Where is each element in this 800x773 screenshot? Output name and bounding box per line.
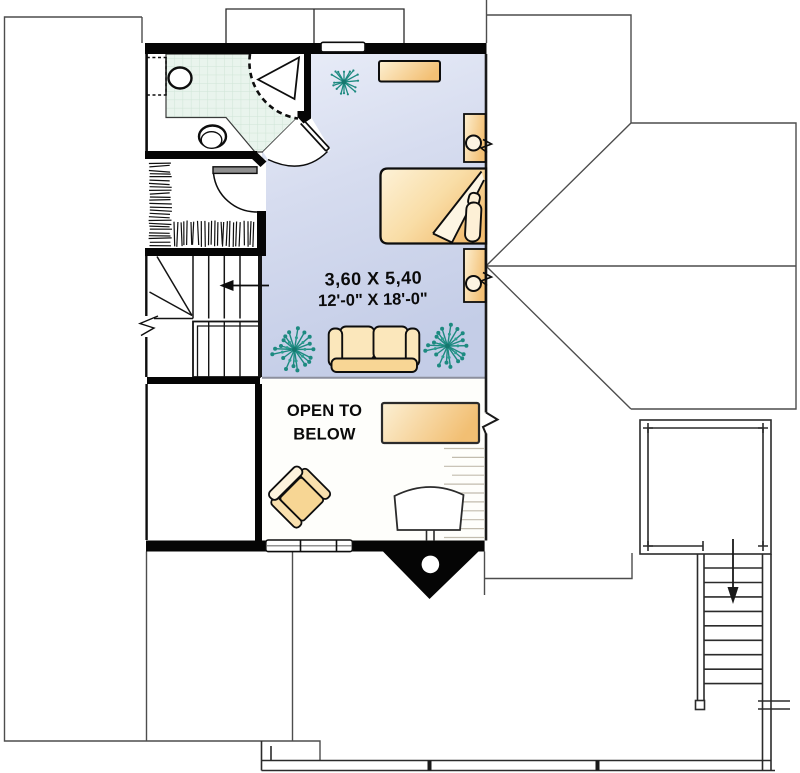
svg-text:3,60 X 5,40: 3,60 X 5,40 [324,267,422,289]
svg-text:12'-0" X 18'-0": 12'-0" X 18'-0" [318,290,428,310]
svg-text:BELOW: BELOW [293,426,356,444]
svg-text:OPEN TO: OPEN TO [287,402,362,420]
